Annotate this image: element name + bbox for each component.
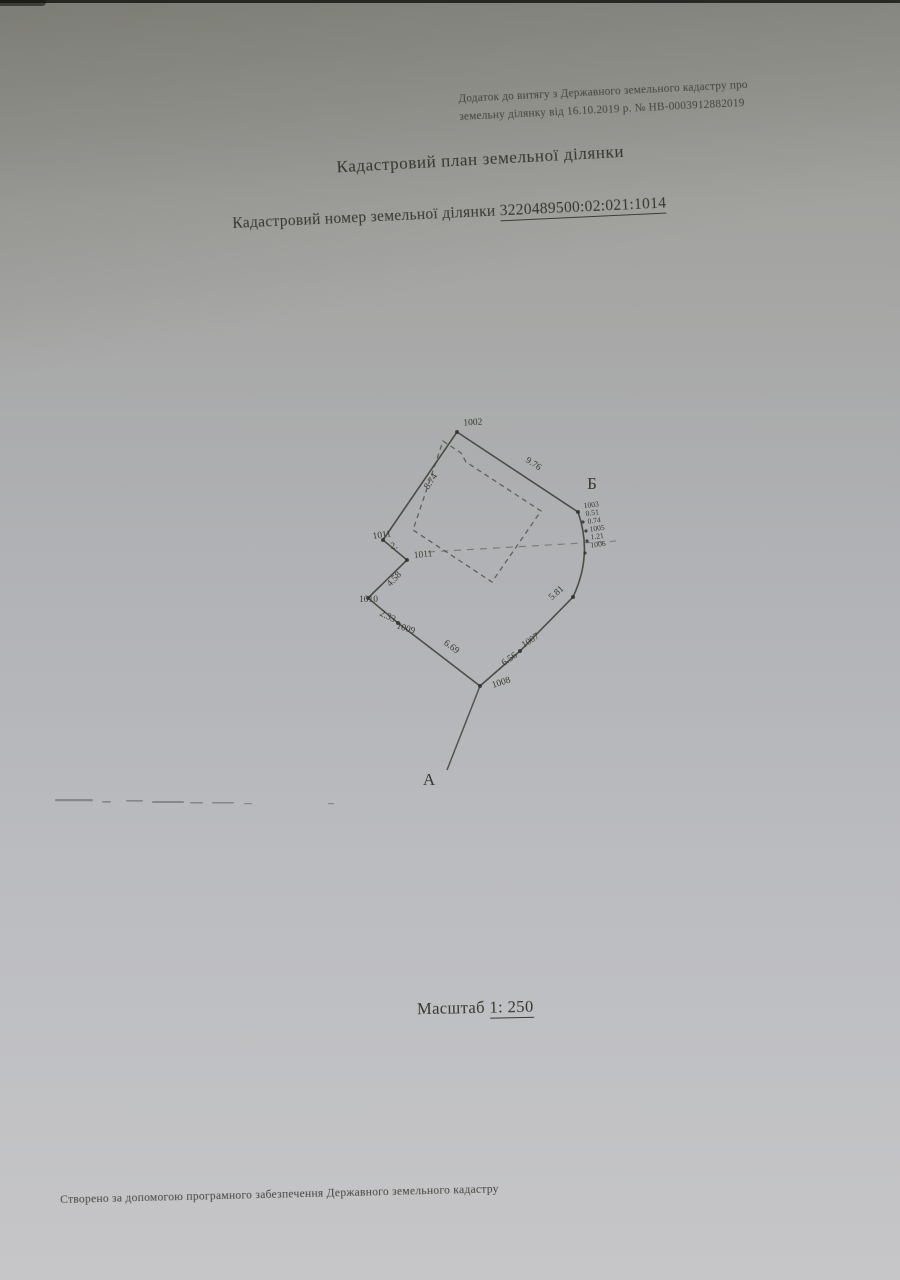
- vertex-dot-arc-end: [571, 595, 575, 599]
- point-label-1008: 1008: [491, 675, 512, 690]
- corner-letter-b: Б: [587, 474, 597, 493]
- point-label-1011a: 1011: [372, 529, 392, 542]
- point-label-1011b: 1011: [413, 549, 433, 561]
- corner-letter-a: А: [423, 770, 436, 789]
- pencil-dash-2: [102, 801, 111, 803]
- pencil-dash-3: [126, 800, 143, 802]
- scale-line: Масштаб 1: 250: [417, 997, 534, 1019]
- vertex-dot-arc3: [585, 539, 588, 542]
- pencil-smudge-line: [55, 799, 334, 804]
- point-label-1010: 1010: [359, 595, 378, 605]
- pencil-dash-8: [328, 803, 334, 804]
- boundary-extension-line: [447, 686, 480, 770]
- measurement-9-76: 9.76: [523, 456, 543, 474]
- measurement-4-58: 4.58: [385, 570, 404, 589]
- measurement-5-81: 5.81: [547, 584, 566, 603]
- dashed-reference-line: [428, 541, 616, 552]
- measurement-2: 2.: [390, 541, 398, 552]
- vertex-dot-arc1: [581, 520, 584, 523]
- pencil-dash-1: [55, 799, 93, 801]
- measurement-6-69: 6.69: [442, 638, 462, 656]
- point-label-1009: 1009: [395, 621, 416, 636]
- measurement-8-74: 8.74: [423, 472, 441, 492]
- pencil-dash-5: [190, 802, 203, 804]
- vertex-dot-b: [576, 510, 580, 514]
- pencil-dash-6: [212, 802, 234, 804]
- pencil-dash-7: [244, 803, 252, 804]
- pencil-dash-4: [152, 801, 184, 803]
- scale-label: Масштаб: [417, 998, 485, 1018]
- vertex-dot-notch-a: [405, 558, 409, 562]
- vertex-dot-1007: [518, 649, 522, 653]
- scanned-cadastral-document: Додаток до витягу з Державного земельног…: [0, 0, 900, 1280]
- point-label-1002: 1002: [463, 417, 483, 428]
- point-label-1007: 1007: [520, 631, 542, 650]
- cluster-line-1006: 1006: [590, 539, 606, 550]
- vertex-dot-1002: [455, 430, 459, 434]
- vertex-dot-arc4: [583, 551, 586, 554]
- vertex-dot-1008: [478, 684, 482, 688]
- scale-value: 1: 250: [489, 997, 534, 1019]
- measurement-2-33: 2.33: [378, 609, 398, 625]
- cadastral-plan-figure: 1002 Б 1003 0.51 0.74 1005 1.21 1006 101…: [0, 0, 900, 1280]
- parcel-boundary-path: [368, 432, 584, 686]
- building-outline-dashed: [413, 441, 541, 582]
- vertex-dot-arc2: [584, 529, 587, 532]
